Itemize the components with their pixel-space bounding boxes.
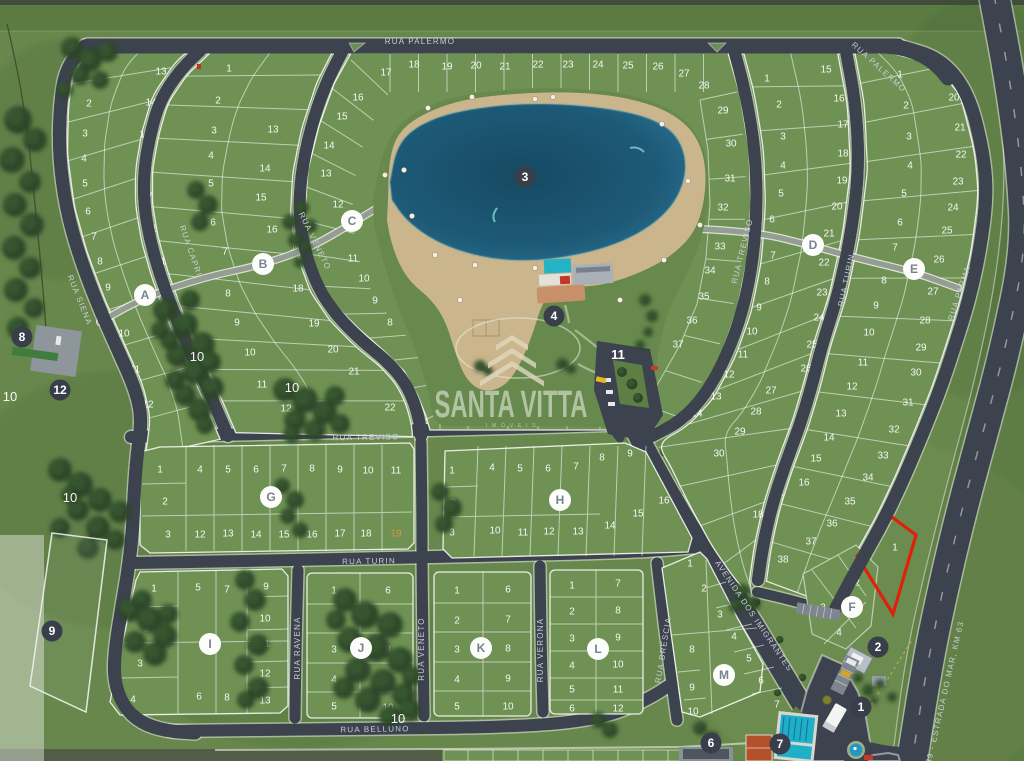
svg-text:7: 7 (774, 700, 780, 711)
svg-text:B: B (259, 257, 268, 271)
svg-text:23: 23 (816, 288, 828, 299)
svg-text:1: 1 (454, 586, 460, 597)
svg-text:9: 9 (873, 301, 879, 312)
svg-text:16: 16 (833, 94, 845, 105)
svg-text:SANTA VITTA: SANTA VITTA (435, 384, 588, 426)
svg-text:20: 20 (948, 93, 960, 104)
svg-text:12: 12 (612, 704, 624, 715)
svg-text:12: 12 (723, 370, 735, 381)
svg-text:3: 3 (137, 659, 143, 670)
svg-text:10: 10 (502, 702, 514, 713)
svg-text:10: 10 (489, 526, 501, 537)
svg-text:9: 9 (505, 674, 511, 685)
svg-text:6: 6 (758, 676, 764, 687)
svg-text:9: 9 (234, 318, 240, 329)
svg-text:4: 4 (208, 151, 214, 162)
svg-text:19: 19 (308, 319, 320, 330)
svg-text:11: 11 (518, 528, 529, 539)
svg-text:37: 37 (805, 537, 817, 548)
svg-text:31: 31 (902, 398, 914, 409)
svg-text:2: 2 (903, 101, 909, 112)
svg-text:33: 33 (877, 451, 889, 462)
svg-text:16: 16 (798, 478, 810, 489)
svg-text:21: 21 (954, 123, 966, 134)
svg-text:16: 16 (266, 225, 278, 236)
svg-text:4: 4 (780, 161, 786, 172)
svg-text:3: 3 (331, 645, 337, 656)
svg-text:32: 32 (888, 425, 900, 436)
svg-text:1: 1 (569, 581, 575, 592)
svg-text:27: 27 (765, 386, 777, 397)
svg-text:6: 6 (505, 585, 511, 596)
svg-text:8: 8 (505, 644, 511, 655)
svg-text:18: 18 (837, 149, 849, 160)
svg-text:1: 1 (157, 465, 163, 476)
svg-text:12: 12 (846, 382, 858, 393)
svg-text:9: 9 (627, 449, 633, 460)
svg-text:H: H (556, 493, 565, 507)
svg-text:RUA VENETO: RUA VENETO (417, 617, 426, 680)
svg-text:22: 22 (818, 258, 830, 269)
svg-text:11: 11 (611, 347, 625, 362)
svg-text:16: 16 (352, 93, 364, 104)
svg-text:30: 30 (713, 449, 725, 460)
svg-text:22: 22 (384, 403, 396, 414)
svg-text:15: 15 (820, 65, 832, 76)
svg-text:7: 7 (777, 737, 784, 751)
svg-text:5: 5 (331, 702, 337, 713)
svg-text:11: 11 (257, 380, 268, 391)
svg-text:28: 28 (698, 81, 710, 92)
svg-text:3: 3 (522, 170, 529, 184)
svg-text:7: 7 (91, 232, 97, 243)
svg-text:3: 3 (454, 645, 460, 656)
svg-text:RUA TURIN: RUA TURIN (342, 556, 396, 566)
svg-text:6: 6 (385, 586, 391, 597)
svg-text:31: 31 (724, 174, 736, 185)
svg-text:6: 6 (708, 736, 715, 750)
svg-text:13: 13 (222, 529, 234, 540)
svg-text:12: 12 (194, 530, 206, 541)
svg-text:20: 20 (470, 61, 482, 72)
svg-text:18: 18 (408, 60, 420, 71)
svg-text:D: D (809, 238, 818, 252)
svg-text:1: 1 (858, 700, 865, 714)
svg-text:14: 14 (604, 521, 616, 532)
svg-text:5: 5 (454, 702, 460, 713)
svg-text:37: 37 (672, 340, 684, 351)
svg-text:21: 21 (823, 229, 835, 240)
svg-text:A: A (141, 288, 150, 302)
svg-text:10: 10 (358, 274, 370, 285)
svg-text:26: 26 (652, 62, 664, 73)
svg-text:10: 10 (118, 329, 130, 340)
svg-text:10: 10 (687, 707, 699, 718)
svg-text:7: 7 (281, 464, 287, 475)
svg-text:24: 24 (592, 60, 604, 71)
svg-text:35: 35 (844, 497, 856, 508)
svg-text:7: 7 (770, 251, 776, 262)
svg-text:9: 9 (263, 582, 269, 593)
svg-text:2: 2 (454, 616, 460, 627)
svg-text:10: 10 (362, 466, 374, 477)
svg-text:18: 18 (752, 510, 764, 521)
svg-text:6: 6 (897, 218, 903, 229)
svg-text:4: 4 (551, 309, 558, 323)
svg-text:9: 9 (615, 633, 621, 644)
svg-text:2: 2 (86, 99, 92, 110)
svg-text:8: 8 (599, 453, 605, 464)
svg-text:5: 5 (82, 179, 88, 190)
svg-text:8: 8 (224, 693, 230, 704)
svg-text:9: 9 (372, 296, 378, 307)
svg-text:8: 8 (689, 645, 695, 656)
svg-text:9: 9 (49, 624, 56, 638)
svg-text:L: L (594, 642, 601, 656)
svg-text:5: 5 (569, 685, 575, 696)
svg-text:RUA PALERMO: RUA PALERMO (385, 37, 455, 46)
svg-text:17: 17 (334, 529, 346, 540)
svg-text:8: 8 (764, 277, 770, 288)
svg-text:6: 6 (210, 218, 216, 229)
svg-text:1: 1 (151, 584, 157, 595)
svg-text:G: G (266, 490, 275, 504)
svg-text:3: 3 (569, 634, 575, 645)
svg-text:7: 7 (615, 579, 621, 590)
svg-text:IMÓVEIS: IMÓVEIS (486, 422, 540, 429)
svg-text:34: 34 (704, 266, 716, 277)
svg-text:38: 38 (777, 555, 789, 566)
svg-text:2: 2 (776, 100, 782, 111)
svg-text:10: 10 (863, 328, 875, 339)
svg-text:4: 4 (454, 675, 460, 686)
svg-text:8: 8 (97, 257, 103, 268)
svg-text:35: 35 (698, 292, 710, 303)
svg-text:4: 4 (731, 632, 737, 643)
svg-text:8: 8 (387, 318, 393, 329)
svg-text:12: 12 (53, 383, 67, 397)
svg-text:20: 20 (831, 202, 843, 213)
svg-text:7: 7 (573, 462, 579, 473)
svg-text:13: 13 (320, 169, 332, 180)
svg-text:4: 4 (489, 463, 495, 474)
svg-text:7: 7 (222, 247, 228, 258)
svg-text:10: 10 (285, 380, 299, 395)
svg-text:15: 15 (632, 509, 644, 520)
svg-text:23: 23 (952, 177, 964, 188)
svg-text:18: 18 (292, 284, 304, 295)
svg-text:6: 6 (545, 464, 551, 475)
svg-text:10: 10 (612, 660, 624, 671)
svg-text:29: 29 (717, 106, 729, 117)
svg-text:2: 2 (162, 497, 168, 508)
svg-text:11: 11 (613, 685, 624, 696)
svg-text:4: 4 (81, 154, 87, 165)
svg-text:30: 30 (725, 139, 737, 150)
svg-text:26: 26 (933, 255, 945, 266)
svg-text:14: 14 (323, 141, 335, 152)
svg-text:16: 16 (658, 496, 670, 507)
svg-text:36: 36 (826, 519, 838, 530)
svg-text:2: 2 (701, 584, 707, 595)
svg-text:13: 13 (572, 527, 584, 538)
svg-text:7: 7 (505, 615, 511, 626)
svg-text:6: 6 (569, 704, 575, 715)
svg-text:28: 28 (919, 316, 931, 327)
svg-text:4: 4 (569, 661, 575, 672)
svg-text:1: 1 (892, 543, 898, 554)
svg-text:22: 22 (955, 150, 967, 161)
svg-text:I: I (208, 637, 211, 651)
svg-text:J: J (358, 641, 365, 655)
svg-text:21: 21 (348, 367, 360, 378)
svg-text:RUA RAVENA: RUA RAVENA (293, 617, 302, 680)
svg-text:7: 7 (224, 585, 230, 596)
svg-text:12: 12 (332, 200, 344, 211)
svg-text:10: 10 (746, 327, 758, 338)
svg-text:5: 5 (901, 189, 907, 200)
svg-text:8: 8 (19, 330, 26, 344)
svg-text:9: 9 (337, 465, 343, 476)
svg-text:1: 1 (226, 64, 232, 75)
svg-text:1: 1 (687, 559, 693, 570)
svg-text:5: 5 (517, 464, 523, 475)
svg-text:10: 10 (63, 490, 77, 505)
svg-text:2: 2 (215, 96, 221, 107)
svg-text:34: 34 (862, 473, 874, 484)
svg-text:9: 9 (756, 303, 762, 314)
svg-text:18: 18 (360, 529, 372, 540)
svg-text:C: C (348, 214, 357, 228)
svg-text:11: 11 (858, 358, 869, 369)
svg-text:21: 21 (499, 62, 511, 73)
svg-text:12: 12 (543, 527, 555, 538)
svg-text:8: 8 (881, 276, 887, 287)
svg-text:28: 28 (750, 407, 762, 418)
svg-text:8: 8 (309, 464, 315, 475)
svg-text:3: 3 (211, 126, 217, 137)
svg-text:19: 19 (836, 176, 848, 187)
svg-text:6: 6 (769, 215, 775, 226)
svg-text:10: 10 (190, 349, 204, 364)
svg-text:4: 4 (197, 465, 203, 476)
svg-text:14: 14 (259, 164, 271, 175)
svg-text:11: 11 (738, 350, 749, 361)
svg-text:30: 30 (910, 368, 922, 379)
svg-text:1: 1 (764, 74, 770, 85)
svg-text:33: 33 (714, 242, 726, 253)
svg-text:15: 15 (810, 454, 822, 465)
svg-text:13: 13 (267, 125, 279, 136)
svg-text:3: 3 (906, 132, 912, 143)
svg-text:5: 5 (208, 179, 214, 190)
svg-text:3: 3 (717, 610, 723, 621)
svg-text:5: 5 (225, 465, 231, 476)
svg-text:27: 27 (678, 69, 690, 80)
svg-text:5: 5 (195, 583, 201, 594)
svg-text:19: 19 (441, 62, 453, 73)
svg-text:25: 25 (622, 61, 634, 72)
svg-text:29: 29 (915, 343, 927, 354)
svg-text:11: 11 (348, 254, 359, 265)
svg-text:27: 27 (927, 287, 939, 298)
svg-text:3: 3 (780, 132, 786, 143)
svg-text:25: 25 (941, 226, 953, 237)
svg-text:16: 16 (306, 530, 318, 541)
svg-text:1: 1 (449, 466, 455, 477)
svg-text:RUA VERONA: RUA VERONA (536, 618, 545, 682)
svg-text:11: 11 (391, 466, 402, 477)
svg-text:K: K (477, 641, 486, 655)
svg-text:14: 14 (823, 433, 835, 444)
svg-text:29: 29 (734, 427, 746, 438)
svg-text:2: 2 (569, 607, 575, 618)
svg-text:3: 3 (165, 530, 171, 541)
svg-text:10: 10 (3, 389, 17, 404)
svg-text:F: F (848, 600, 855, 614)
svg-text:6: 6 (196, 692, 202, 703)
svg-text:17: 17 (837, 120, 849, 131)
svg-text:32: 32 (717, 203, 729, 214)
svg-text:23: 23 (562, 60, 574, 71)
svg-text:13: 13 (155, 67, 167, 78)
svg-text:14: 14 (250, 530, 262, 541)
svg-text:7: 7 (892, 243, 898, 254)
svg-text:19: 19 (390, 529, 402, 540)
svg-text:6: 6 (253, 465, 259, 476)
svg-text:4: 4 (907, 161, 913, 172)
svg-text:9: 9 (105, 283, 111, 294)
svg-text:M: M (719, 668, 729, 682)
svg-text:2: 2 (875, 640, 882, 654)
svg-text:10: 10 (391, 711, 405, 726)
svg-text:5: 5 (746, 654, 752, 665)
svg-text:15: 15 (278, 530, 290, 541)
svg-text:15: 15 (336, 112, 348, 123)
svg-text:8: 8 (225, 289, 231, 300)
svg-text:10: 10 (244, 348, 256, 359)
svg-text:RUA TREVISO: RUA TREVISO (333, 432, 400, 442)
svg-text:24: 24 (947, 203, 959, 214)
svg-text:4: 4 (836, 628, 842, 639)
svg-text:10: 10 (259, 614, 271, 625)
svg-text:17: 17 (380, 68, 392, 79)
svg-text:E: E (910, 262, 918, 276)
svg-text:5: 5 (778, 189, 784, 200)
svg-text:22: 22 (532, 60, 544, 71)
svg-text:15: 15 (255, 193, 267, 204)
svg-text:13: 13 (835, 409, 847, 420)
svg-text:36: 36 (686, 316, 698, 327)
svg-text:20: 20 (327, 345, 339, 356)
svg-text:3: 3 (82, 129, 88, 140)
svg-text:8: 8 (615, 606, 621, 617)
svg-text:6: 6 (85, 207, 91, 218)
svg-text:9: 9 (689, 683, 695, 694)
